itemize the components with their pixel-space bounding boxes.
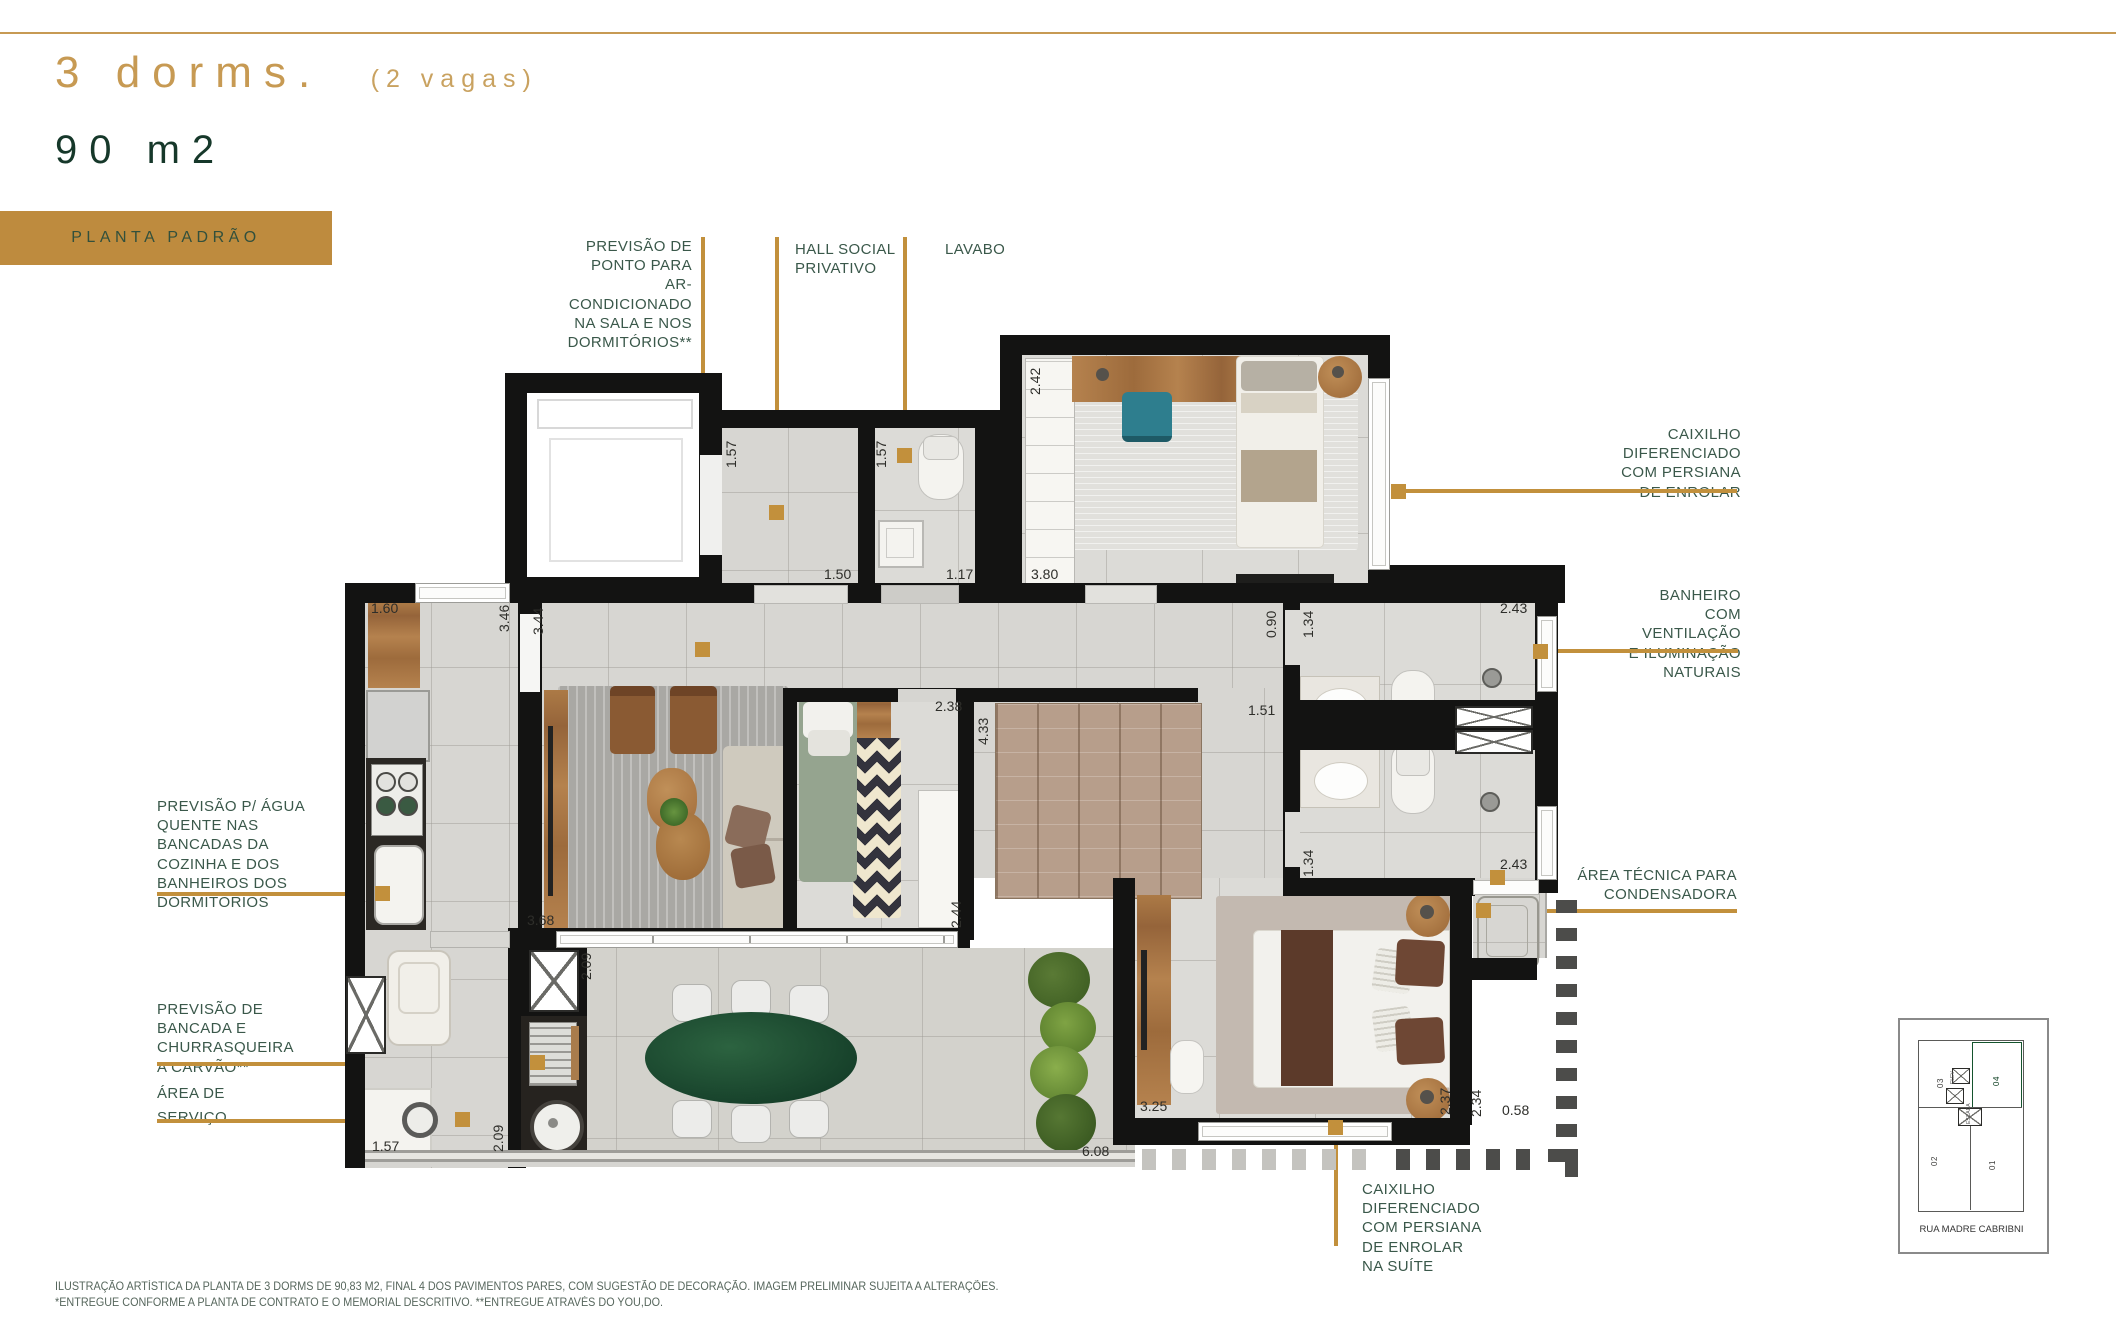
dimension-label: 2.43: [1500, 600, 1527, 616]
leader-line-caixilho-suite: [1334, 1128, 1338, 1246]
dimension-label: 1.60: [371, 600, 398, 616]
washing-machine-door: [402, 1102, 438, 1138]
dining-table: [645, 1012, 857, 1104]
dimension-label: 2.09: [578, 953, 594, 980]
callout-area-servico-2: SERVIÇO: [157, 1108, 307, 1127]
churrasqueira-grill: [529, 1022, 577, 1086]
leader-marker: [1391, 484, 1406, 499]
dimension-label: 3.46: [496, 605, 512, 632]
bedroom1-chair: [1122, 392, 1172, 442]
dimension-label: 2.42: [1027, 368, 1043, 395]
keyplan-elev-label: ELEV: [1950, 1071, 1956, 1084]
terrace-chair-4: [672, 1100, 712, 1138]
terrace-sink: [530, 1100, 584, 1154]
bedroom2-rug: [853, 738, 901, 918]
wall: [1465, 958, 1537, 980]
callout-area-tecnica: ÁREA TÉCNICA PARA CONDENSADORA: [1567, 866, 1737, 904]
condensadora-inner: [1486, 905, 1528, 957]
callout-banheiro: BANHEIRO COM VENTILAÇÃO E ILUMINAÇÃO NAT…: [1611, 586, 1741, 682]
keyplan-street-label: RUA MADRE CABRIBNI: [1900, 1224, 2043, 1235]
hatch-dash: [1556, 1096, 1577, 1109]
keyplan-escada-label: ESCADA: [1966, 1103, 1972, 1124]
bedroom1-window: [1368, 378, 1390, 570]
suite-lamp-1: [1420, 905, 1434, 919]
bath2-window: [1537, 806, 1557, 880]
page-subtitle: 90 m2: [55, 128, 226, 173]
bedroom1-bed-runner: [1241, 450, 1317, 502]
dimension-label: 2.44: [948, 901, 964, 928]
hatch-dash: [1292, 1149, 1306, 1170]
bath2-sink: [1314, 762, 1368, 800]
bedroom1-table-lamp: [1332, 366, 1344, 378]
hatch-dash: [1396, 1149, 1410, 1170]
suite-pillow-brown-2: [1395, 1017, 1445, 1065]
callout-area-servico-1: ÁREA DE: [157, 1084, 307, 1103]
hatch-dash: [1486, 1149, 1500, 1170]
plan-type-badge: PLANTA PADRÃO: [0, 211, 332, 265]
hatch-dash: [1232, 1149, 1246, 1170]
title-text: 3 dorms.: [55, 48, 322, 97]
wall: [1283, 878, 1475, 896]
lavabo-door-sill: [881, 585, 959, 604]
bedroom1-pillow: [1241, 361, 1317, 391]
suite-tv: [1141, 950, 1147, 1050]
hatch-dash: [1556, 900, 1577, 913]
leader-marker: [695, 642, 710, 657]
terrace-chair-5: [731, 1105, 771, 1143]
dimension-label: 3.68: [527, 912, 554, 928]
dimension-label: 2.38: [935, 698, 962, 714]
kitchen-window: [415, 583, 510, 603]
sofa-pillow-2: [730, 843, 776, 889]
hatch-dash: [1142, 1149, 1156, 1170]
page: { "header": { "title": "3 dorms.", "titl…: [0, 0, 2116, 1323]
tv-living: [548, 726, 553, 896]
dimension-label: 6.08: [1082, 1143, 1109, 1159]
suite-lamp-2: [1420, 1090, 1434, 1104]
keyplan-unit02-label: 02: [1930, 1156, 1939, 1166]
dimension-label: 1.50: [824, 566, 851, 582]
hatch-dash: [1556, 1124, 1577, 1137]
armchair-1: [610, 686, 655, 754]
wall: [345, 583, 365, 1168]
dimension-label: 3.25: [1140, 1098, 1167, 1114]
dimension-label: 4.33: [975, 718, 991, 745]
bedroom1-blanket-fold: [1241, 393, 1317, 413]
burner-3: [376, 796, 396, 816]
hatch-dash: [1322, 1149, 1336, 1170]
burner-1: [376, 772, 396, 792]
hatch-dash: [1556, 1040, 1577, 1053]
duct-service: [346, 976, 386, 1054]
hatch-dash: [1202, 1149, 1216, 1170]
top-gold-rule: [0, 32, 2116, 34]
leader-marker: [1533, 644, 1548, 659]
terrace-plant-2: [1040, 1002, 1096, 1054]
suite-chair: [1170, 1040, 1204, 1094]
keyplan-unit04-highlight: [1972, 1042, 2022, 1108]
lavabo-sink-basin: [886, 528, 914, 558]
callout-caixilho-suite: CAIXILHO DIFERENCIADO COM PERSIANA DE EN…: [1362, 1180, 1490, 1276]
dimension-label: 1.17: [946, 566, 973, 582]
terrace-plant-1: [1028, 952, 1090, 1008]
wall: [1113, 878, 1135, 1145]
bedroom1-desk-lamp: [1096, 368, 1109, 381]
burner-2: [398, 772, 418, 792]
keyplan-unit04-label: 04: [1992, 1076, 2001, 1086]
terrace-plant-3: [1030, 1046, 1088, 1100]
wall: [1000, 335, 1022, 590]
armchair-2: [670, 686, 717, 754]
callout-lavabo: LAVABO: [945, 240, 1055, 259]
dimension-label: 2.34: [1468, 1090, 1484, 1117]
bath2-door: [1285, 812, 1300, 867]
hatch-dash: [1556, 1012, 1577, 1025]
hatch-dash: [1565, 1149, 1578, 1177]
hatch-dash: [1556, 1068, 1577, 1081]
wall: [858, 410, 875, 590]
dimension-label: 0.90: [1263, 611, 1279, 638]
leader-marker: [1328, 1120, 1343, 1135]
terrace-sink-drain: [548, 1118, 558, 1128]
leader-marker: [1490, 870, 1505, 885]
dimension-label: 3.80: [1031, 566, 1058, 582]
burner-4: [398, 796, 418, 816]
terrace-railing: [365, 1150, 1135, 1167]
wall: [1450, 878, 1472, 1125]
dimension-label: 1.51: [1248, 702, 1275, 718]
suite-bed-runner: [1281, 930, 1333, 1086]
keyplan-box: 03 04 02 01 ELEV ESCADA RUA MADRE CABRIB…: [1898, 1018, 2049, 1254]
hatch-dash: [1556, 928, 1577, 941]
keyplan-unit03-label: 03: [1936, 1078, 1945, 1088]
shaft-1: [1455, 706, 1533, 728]
hatch-dash: [1556, 956, 1577, 969]
bedroom2-nightstand: [857, 698, 891, 738]
leader-marker: [769, 505, 784, 520]
dimension-label: 1.57: [372, 1138, 399, 1154]
leader-marker: [455, 1112, 470, 1127]
suite-closet-wardrobe: [995, 703, 1202, 899]
dimension-label: 2.37: [1437, 1088, 1453, 1115]
hatch-dash: [1426, 1149, 1440, 1170]
disclaimer-line-1: ILUSTRAÇÃO ARTÍSTICA DA PLANTA DE 3 DORM…: [55, 1281, 999, 1293]
dimension-label: 0.58: [1502, 1102, 1529, 1118]
bath1-shower-head: [1482, 668, 1502, 688]
hatch-dash: [1516, 1149, 1530, 1170]
hall-door-sill: [754, 585, 848, 604]
hatch-dash: [1556, 984, 1577, 997]
bath2-shower-head: [1480, 792, 1500, 812]
keyplan-elev-2: [1946, 1088, 1964, 1104]
terrace-glass-door: [556, 931, 958, 948]
elevator-door: [700, 455, 722, 555]
disclaimer-line-2: *ENTREGUE CONFORME A PLANTA DE CONTRATO …: [55, 1297, 663, 1309]
elevator-door-band: [537, 399, 693, 429]
leader-marker: [1476, 903, 1491, 918]
bedroom1-tv: [1236, 574, 1334, 583]
wall: [783, 688, 797, 940]
dimension-label: 1.34: [1300, 611, 1316, 638]
callout-ac: PREVISÃO DE PONTO PARA AR-CONDICIONADO N…: [550, 237, 692, 352]
wall: [975, 410, 1001, 590]
area-tecnica-vent: [1473, 880, 1539, 895]
leader-marker: [897, 448, 912, 463]
hatch-dash: [1262, 1149, 1276, 1170]
terrace-chair-6: [789, 1100, 829, 1138]
lavabo-toilet-tank: [923, 436, 959, 460]
leader-marker: [375, 886, 390, 901]
leader-marker: [530, 1055, 545, 1070]
shaft-2: [1455, 730, 1533, 754]
wall: [783, 688, 1198, 702]
wall: [1000, 335, 1390, 355]
leader-line-caixilho: [1404, 489, 1737, 493]
churrasqueira-handles: [571, 1026, 579, 1080]
bedroom2-pillow-2: [808, 730, 850, 756]
plant-coffee-table: [660, 798, 688, 826]
elevator-cab: [549, 438, 683, 562]
churrasqueira-shaft: [529, 950, 579, 1012]
bath1-door: [1285, 610, 1300, 665]
dimension-label: 1.57: [723, 441, 739, 468]
hatch-dash: [1172, 1149, 1186, 1170]
hatch-dash: [1352, 1149, 1366, 1170]
dimension-label: 2.09: [490, 1125, 506, 1152]
bedroom1-door-sill: [1085, 585, 1157, 604]
dimension-label: 1.57: [873, 441, 889, 468]
page-title: 3 dorms. (2 vagas): [55, 48, 538, 98]
kitchen-sink: [374, 845, 424, 925]
suite-pillow-brown-1: [1395, 939, 1445, 987]
title-suffix: (2 vagas): [371, 65, 538, 93]
laundry-door-sill: [430, 931, 510, 948]
keyplan-unit01-label: 01: [1988, 1160, 1997, 1170]
laundry-tank-basin: [398, 962, 440, 1014]
dimension-label: 3.44: [530, 608, 546, 635]
suite-window: [1198, 1122, 1392, 1141]
dimension-label: 1.34: [1300, 850, 1316, 877]
fridge: [366, 690, 430, 762]
hatch-dash: [1456, 1149, 1470, 1170]
